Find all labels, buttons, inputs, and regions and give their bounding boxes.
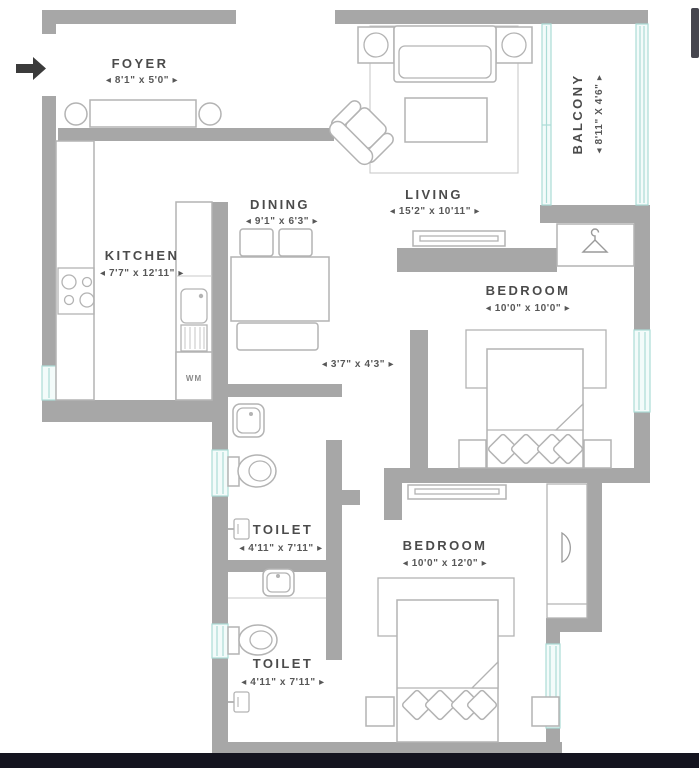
kitchen-counter-left [56,141,94,400]
balcony-dims: ◂ 8'11" X 4'6" ▸ [594,75,605,154]
bedroom1-window [634,330,650,412]
dining-chair [279,229,312,256]
bedroom2-furniture [366,484,587,742]
washbasin-icon [233,404,264,437]
shoe-cabinet [90,100,196,127]
sofa [394,26,496,82]
closet-door-icon [562,533,570,562]
living-dims: ◂ 15'2" x 10'11" ▸ [390,206,480,217]
bed [459,330,611,468]
balcony-outer-window [636,24,648,205]
dining-label: DINING [250,197,310,212]
foyer-stool [65,103,87,125]
wardrobe [557,224,634,266]
bedside-table [532,697,559,726]
washing-machine-label: WM [186,374,202,383]
kitchen-window [42,366,56,400]
toilet2-label: TOILET [253,656,313,671]
floor-plan: WM [0,0,699,768]
tv-unit [413,231,505,246]
bedroom1-label: BEDROOM [486,283,571,298]
tv-unit [408,485,506,499]
wc-icon [228,625,277,655]
toilet1-dims: ◂ 4'11" x 7'11" ▸ [239,543,322,554]
washing-machine: WM [176,352,212,400]
dining-set [231,229,329,350]
foyer-stool [199,103,221,125]
toilet1-label: TOILET [253,522,313,537]
toilet1-fixtures [228,404,276,539]
bedroom2-label: BEDROOM [403,538,488,553]
foyer-console [65,100,221,127]
balcony-label: BALCONY [570,73,585,154]
bedside-table [366,697,394,726]
shower-mixer-icon [228,692,249,712]
armchair [325,97,397,169]
scrollbar[interactable] [691,8,699,58]
foyer-label: FOYER [112,56,169,71]
wc-icon [228,455,276,487]
balcony-door-window [542,24,551,205]
passage-dims: ◂ 3'7" x 4'3" ▸ [322,359,394,370]
bedroom2-dims: ◂ 10'0" x 12'0" ▸ [403,558,488,569]
closet [547,484,587,618]
bed [366,578,559,742]
toilet2-vent-window [212,624,228,658]
dining-chair [240,229,273,256]
coffee-table [405,98,487,142]
dining-dims: ◂ 9'1" x 6'3" ▸ [246,216,318,227]
kitchen-label: KITCHEN [105,248,180,263]
washbasin-icon [263,569,294,596]
bottom-bar [0,753,699,768]
side-table [358,27,394,63]
foyer-dims: ◂ 8'1" x 5'0" ▸ [106,75,178,86]
toilet1-vent-window [212,450,228,496]
floor-plan-page: WM [0,0,699,768]
living-label: LIVING [405,187,463,202]
toilet2-dims: ◂ 4'11" x 7'11" ▸ [241,677,324,688]
bedside-table [459,440,486,468]
toilet2-fixtures [228,569,326,712]
bedroom1-dims: ◂ 10'0" x 10'0" ▸ [486,303,571,314]
dining-bench [237,323,318,350]
side-table [496,27,532,63]
shower-mixer-icon [228,519,249,539]
bedside-table [584,440,611,468]
entry-arrow-icon [16,57,46,80]
kitchen-dims: ◂ 7'7" x 12'11" ▸ [100,268,184,279]
dining-table [231,257,329,321]
